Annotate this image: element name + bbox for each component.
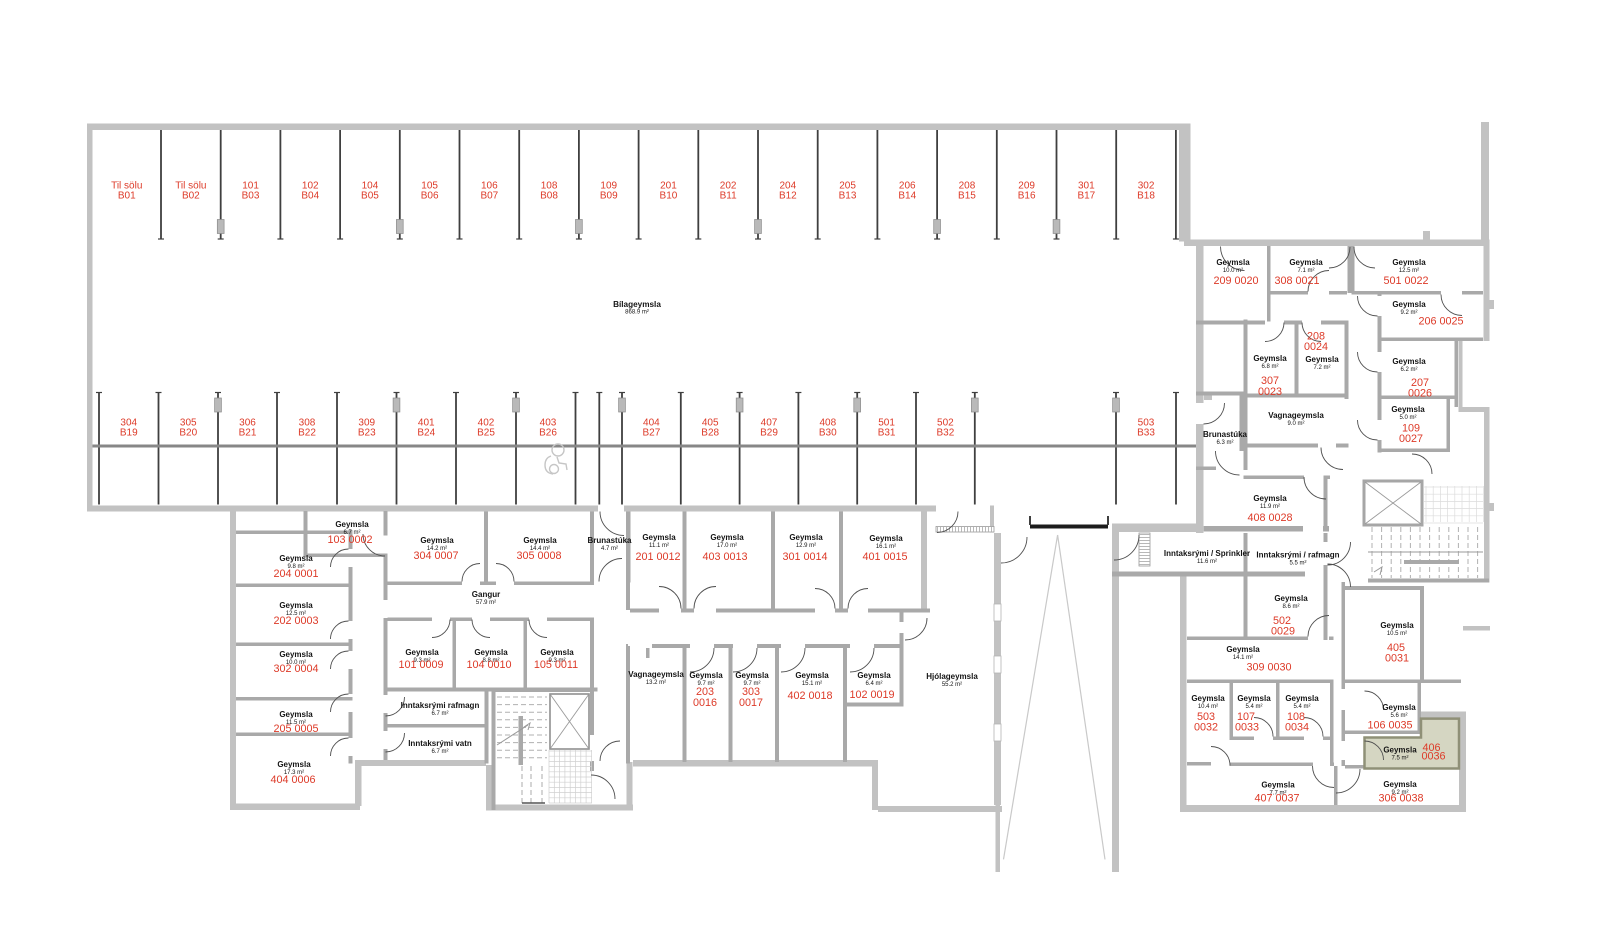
- svg-text:B27: B27: [643, 427, 661, 438]
- svg-text:205 0005: 205 0005: [273, 723, 318, 735]
- svg-text:B04: B04: [301, 190, 319, 201]
- svg-text:0027: 0027: [1399, 433, 1423, 445]
- svg-text:308 0021: 308 0021: [1274, 275, 1319, 287]
- svg-text:Geymsla: Geymsla: [1289, 258, 1323, 267]
- svg-text:0031: 0031: [1385, 653, 1409, 665]
- svg-text:Geymsla: Geymsla: [279, 710, 313, 719]
- svg-text:Geymsla: Geymsla: [1383, 746, 1417, 755]
- svg-text:0026: 0026: [1408, 388, 1432, 400]
- svg-text:209 0020: 209 0020: [1213, 275, 1258, 287]
- svg-text:105 0011: 105 0011: [534, 659, 578, 671]
- svg-text:Geymsla: Geymsla: [1380, 621, 1414, 630]
- svg-text:Gangur: Gangur: [472, 590, 500, 599]
- svg-text:0024: 0024: [1304, 341, 1328, 353]
- svg-text:0017: 0017: [739, 697, 763, 709]
- svg-text:B02: B02: [182, 190, 200, 201]
- svg-text:6.2 m²: 6.2 m²: [1400, 367, 1417, 373]
- svg-text:Geymsla: Geymsla: [1391, 405, 1425, 414]
- svg-text:Geymsla: Geymsla: [710, 533, 744, 542]
- svg-text:Geymsla: Geymsla: [420, 536, 454, 545]
- svg-text:Geymsla: Geymsla: [279, 650, 313, 659]
- svg-text:10.5 m²: 10.5 m²: [1387, 631, 1407, 637]
- svg-text:B10: B10: [660, 190, 678, 201]
- svg-text:B05: B05: [361, 190, 379, 201]
- svg-text:301 0014: 301 0014: [782, 551, 827, 563]
- svg-text:401 0015: 401 0015: [862, 551, 907, 563]
- svg-text:5.5 m²: 5.5 m²: [1289, 560, 1306, 566]
- svg-text:Geymsla: Geymsla: [735, 671, 769, 680]
- svg-text:5.4 m²: 5.4 m²: [1293, 704, 1310, 710]
- svg-text:Geymsla: Geymsla: [540, 648, 574, 657]
- svg-text:306 0038: 306 0038: [1378, 793, 1423, 805]
- svg-text:10.4 m²: 10.4 m²: [1198, 704, 1218, 710]
- svg-text:B11: B11: [720, 190, 737, 201]
- svg-text:17.0 m²: 17.0 m²: [717, 543, 737, 549]
- svg-text:10.0 m²: 10.0 m²: [1223, 268, 1243, 274]
- svg-text:Geymsla: Geymsla: [1253, 494, 1287, 503]
- svg-text:11.9 m²: 11.9 m²: [1260, 504, 1280, 510]
- svg-text:6.7 m²: 6.7 m²: [431, 711, 448, 717]
- svg-text:8.6 m²: 8.6 m²: [1282, 604, 1299, 610]
- svg-text:Geymsla: Geymsla: [1226, 645, 1260, 654]
- svg-text:6.3 m²: 6.3 m²: [1216, 440, 1233, 446]
- svg-text:5.0 m²: 5.0 m²: [1399, 415, 1416, 421]
- svg-text:B33: B33: [1137, 427, 1155, 438]
- svg-text:B20: B20: [179, 427, 197, 438]
- svg-text:102 0019: 102 0019: [849, 689, 894, 701]
- svg-text:Geymsla: Geymsla: [1305, 355, 1339, 364]
- svg-text:11.6 m²: 11.6 m²: [1197, 559, 1217, 565]
- svg-text:Geymsla: Geymsla: [405, 648, 439, 657]
- svg-text:302 0004: 302 0004: [273, 663, 318, 675]
- svg-text:Geymsla: Geymsla: [474, 648, 508, 657]
- svg-text:Geymsla: Geymsla: [1285, 694, 1319, 703]
- svg-text:B12: B12: [779, 190, 797, 201]
- svg-text:B14: B14: [898, 190, 916, 201]
- svg-text:9.0 m²: 9.0 m²: [1287, 421, 1304, 427]
- svg-text:B18: B18: [1137, 190, 1155, 201]
- svg-text:B06: B06: [421, 190, 439, 201]
- svg-text:6.7 m²: 6.7 m²: [431, 749, 448, 755]
- svg-text:501 0022: 501 0022: [1383, 275, 1428, 287]
- svg-text:0036: 0036: [1421, 751, 1445, 763]
- svg-text:B30: B30: [819, 427, 837, 438]
- svg-text:Geymsla: Geymsla: [857, 671, 891, 680]
- svg-text:B26: B26: [539, 427, 557, 438]
- svg-text:Geymsla: Geymsla: [795, 671, 829, 680]
- svg-text:305 0008: 305 0008: [516, 550, 561, 562]
- svg-text:868.9 m²: 868.9 m²: [625, 310, 649, 316]
- svg-text:0029: 0029: [1271, 626, 1295, 638]
- svg-text:B21: B21: [239, 427, 257, 438]
- svg-text:Inntaksrými vatn: Inntaksrými vatn: [408, 739, 472, 748]
- svg-text:201 0012: 201 0012: [635, 551, 680, 563]
- svg-text:Geymsla: Geymsla: [1261, 781, 1295, 790]
- svg-text:309 0030: 309 0030: [1246, 662, 1291, 674]
- svg-text:B28: B28: [701, 427, 719, 438]
- svg-text:Geymsla: Geymsla: [789, 533, 823, 542]
- svg-text:16.1 m²: 16.1 m²: [876, 544, 896, 550]
- svg-text:B03: B03: [242, 190, 260, 201]
- svg-text:7.2 m²: 7.2 m²: [1313, 365, 1330, 371]
- svg-text:104 0010: 104 0010: [466, 659, 511, 671]
- svg-text:Geymsla: Geymsla: [642, 533, 676, 542]
- svg-text:B01: B01: [118, 190, 136, 201]
- svg-text:402 0018: 402 0018: [787, 690, 832, 702]
- svg-text:Geymsla: Geymsla: [1392, 300, 1426, 309]
- svg-text:0016: 0016: [693, 697, 717, 709]
- svg-text:202 0003: 202 0003: [273, 615, 318, 627]
- svg-text:11.1 m²: 11.1 m²: [649, 543, 669, 549]
- svg-text:B16: B16: [1018, 190, 1036, 201]
- svg-text:Geymsla: Geymsla: [335, 520, 369, 529]
- svg-text:Brunastúka: Brunastúka: [1203, 430, 1248, 439]
- svg-text:B29: B29: [760, 427, 778, 438]
- svg-text:6.8 m²: 6.8 m²: [1261, 364, 1278, 370]
- svg-text:Geymsla: Geymsla: [523, 536, 557, 545]
- svg-text:Geymsla: Geymsla: [1392, 357, 1426, 366]
- svg-text:Bílageymsla: Bílageymsla: [613, 300, 661, 309]
- svg-text:B31: B31: [878, 427, 896, 438]
- svg-text:7.5 m²: 7.5 m²: [1391, 755, 1408, 761]
- svg-text:106 0035: 106 0035: [1367, 720, 1412, 732]
- svg-text:6.4 m²: 6.4 m²: [865, 681, 882, 687]
- svg-text:B25: B25: [477, 427, 495, 438]
- svg-text:Hjólageymsla: Hjólageymsla: [926, 672, 978, 681]
- svg-text:Inntaksrými / rafmagn: Inntaksrými / rafmagn: [1256, 551, 1339, 560]
- svg-text:B24: B24: [417, 427, 435, 438]
- svg-text:0034: 0034: [1285, 722, 1309, 734]
- svg-text:15.1 m²: 15.1 m²: [802, 681, 822, 687]
- svg-text:103 0002: 103 0002: [327, 534, 372, 546]
- svg-text:Geymsla: Geymsla: [1383, 780, 1417, 789]
- svg-text:Geymsla: Geymsla: [1191, 694, 1225, 703]
- svg-text:Inntaksrými / Sprinkler: Inntaksrými / Sprinkler: [1164, 549, 1250, 558]
- svg-text:403 0013: 403 0013: [702, 551, 747, 563]
- svg-text:4.7 m²: 4.7 m²: [601, 546, 618, 552]
- svg-text:B32: B32: [937, 427, 955, 438]
- svg-text:B17: B17: [1077, 190, 1095, 201]
- svg-text:B07: B07: [480, 190, 498, 201]
- svg-text:12.9 m²: 12.9 m²: [796, 543, 816, 549]
- svg-text:0023: 0023: [1258, 386, 1282, 398]
- svg-text:Geymsla: Geymsla: [279, 554, 313, 563]
- svg-text:7.1 m²: 7.1 m²: [1297, 268, 1314, 274]
- svg-text:14.1 m²: 14.1 m²: [1233, 655, 1253, 661]
- svg-text:Vagnageymsla: Vagnageymsla: [628, 670, 684, 679]
- svg-text:Geymsla: Geymsla: [869, 534, 903, 543]
- svg-text:Geymsla: Geymsla: [689, 671, 723, 680]
- svg-text:101 0009: 101 0009: [398, 659, 443, 671]
- svg-text:Brunastúka: Brunastúka: [587, 536, 632, 545]
- svg-text:55.2 m²: 55.2 m²: [942, 682, 962, 688]
- svg-text:B19: B19: [120, 427, 138, 438]
- svg-text:204 0001: 204 0001: [273, 568, 318, 580]
- svg-text:206 0025: 206 0025: [1418, 316, 1463, 328]
- svg-text:404 0006: 404 0006: [270, 774, 315, 786]
- svg-text:B13: B13: [839, 190, 857, 201]
- svg-text:5.4 m²: 5.4 m²: [1245, 704, 1262, 710]
- svg-text:407 0037: 407 0037: [1254, 793, 1299, 805]
- svg-text:5.6 m²: 5.6 m²: [1390, 713, 1407, 719]
- svg-text:Inntaksrými rafmagn: Inntaksrými rafmagn: [401, 701, 480, 710]
- svg-text:304 0007: 304 0007: [413, 550, 458, 562]
- svg-text:Geymsla: Geymsla: [1382, 703, 1416, 712]
- svg-text:13.2 m²: 13.2 m²: [646, 680, 666, 686]
- svg-text:Geymsla: Geymsla: [277, 760, 311, 769]
- svg-text:B22: B22: [298, 427, 316, 438]
- svg-text:Geymsla: Geymsla: [1274, 594, 1308, 603]
- svg-text:408 0028: 408 0028: [1247, 512, 1292, 524]
- svg-text:Vagnageymsla: Vagnageymsla: [1268, 411, 1324, 420]
- svg-text:Geymsla: Geymsla: [1237, 694, 1271, 703]
- svg-text:B09: B09: [600, 190, 618, 201]
- svg-text:B23: B23: [358, 427, 376, 438]
- svg-text:Geymsla: Geymsla: [1392, 258, 1426, 267]
- svg-text:B08: B08: [540, 190, 558, 201]
- svg-text:Geymsla: Geymsla: [1216, 258, 1250, 267]
- svg-text:Geymsla: Geymsla: [1253, 354, 1287, 363]
- svg-text:9.2 m²: 9.2 m²: [1400, 310, 1417, 316]
- svg-text:0032: 0032: [1194, 722, 1218, 734]
- svg-text:B15: B15: [958, 190, 976, 201]
- svg-text:0033: 0033: [1235, 722, 1259, 734]
- svg-text:12.5 m²: 12.5 m²: [1399, 268, 1419, 274]
- svg-text:Geymsla: Geymsla: [279, 601, 313, 610]
- svg-text:57.9 m²: 57.9 m²: [476, 600, 496, 606]
